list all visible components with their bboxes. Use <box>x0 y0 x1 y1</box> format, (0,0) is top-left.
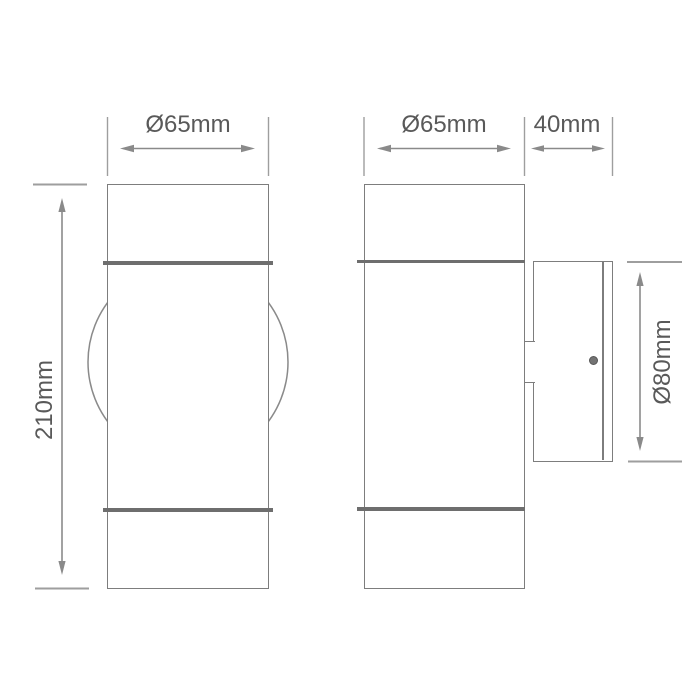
side-view-backplate-edge-line <box>602 262 604 460</box>
height-label: 210mm <box>31 360 59 440</box>
backplate-diameter-label: Ø80mm <box>649 319 677 404</box>
front-view-top-trim-band <box>103 261 273 265</box>
side-view-wall-bracket <box>533 261 613 462</box>
dimension-drawing-canvas: Ø65mm Ø65mm 40mm 210mm Ø80mm <box>0 0 700 700</box>
side-view-screw-dot <box>589 356 598 365</box>
front-diameter-label: Ø65mm <box>145 111 230 139</box>
side-view-mounting-arm <box>525 341 535 383</box>
side-view-bottom-trim-band <box>357 507 525 511</box>
front-view-bottom-trim-band <box>103 508 273 512</box>
depth-label: 40mm <box>534 111 601 139</box>
side-view-top-trim-band <box>357 260 525 264</box>
front-view-body <box>107 184 269 589</box>
side-view-body <box>364 184 525 589</box>
side-diameter-label: Ø65mm <box>401 111 486 139</box>
